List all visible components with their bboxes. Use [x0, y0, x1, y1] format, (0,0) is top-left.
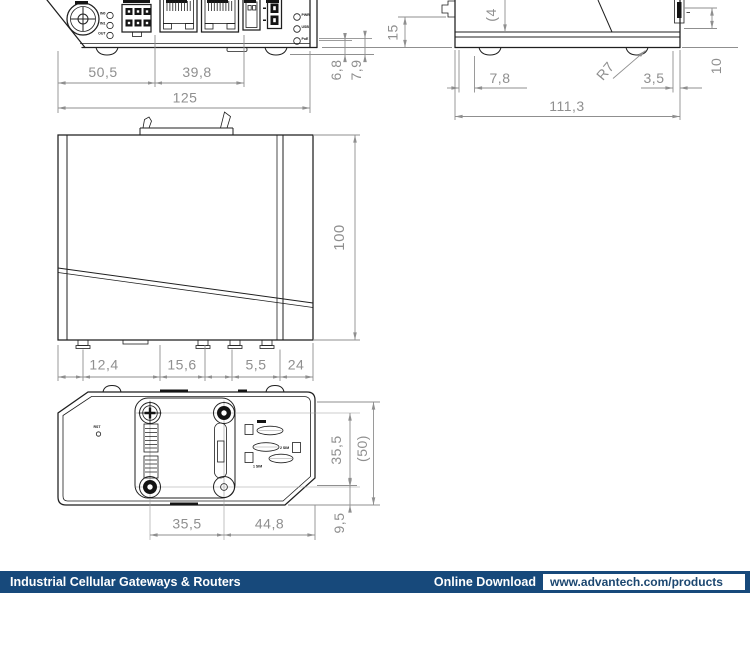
- cutoff-port-label: [166, 0, 187, 3]
- sim2-label: 2 SIM: [280, 446, 289, 450]
- sim-slots: 2 SIM 1 SIM: [245, 420, 301, 469]
- rubber-foot: [479, 48, 501, 56]
- front-dimensions: 50,5 39,8 125 6,8 7,9 15: [58, 17, 452, 113]
- dim-bottom-w2: 44,8: [255, 516, 284, 532]
- cutoff-port-label: [75, 1, 88, 5]
- dim-side-radius: R7: [593, 58, 617, 83]
- screw-top-left: [139, 402, 162, 425]
- power-connector: [263, 0, 282, 29]
- rubber-foot: [103, 386, 121, 393]
- datasheet-page: IN0 IN1 OUT: [0, 0, 750, 650]
- footer-title: Industrial Cellular Gateways & Routers: [10, 575, 434, 589]
- status-leds: PWR USB PoE: [294, 13, 310, 44]
- front-view: IN0 IN1 OUT: [47, 0, 452, 113]
- io-label-out: OUT: [98, 32, 106, 36]
- io-label-in1: IN1: [100, 22, 106, 26]
- side-view: (4 7,8 3,5 111,3 R7 10: [442, 0, 738, 120]
- dim-bottom-v3: 9,5: [331, 513, 347, 534]
- antenna-connector: [67, 3, 99, 35]
- din-clip-tab: [221, 112, 231, 128]
- dim-top-h: 100: [331, 224, 348, 251]
- ethernet-port-1: [202, 0, 239, 32]
- led-label-pwr: PWR: [302, 13, 311, 17]
- online-download-label: Online Download: [434, 575, 536, 589]
- dim-front-w2: 39,8: [182, 64, 211, 80]
- top-dimensions: 100 12,4 15,6 5,5 24: [58, 135, 360, 381]
- din-clip-profile: [442, 1, 455, 17]
- dim-bottom-v2: (50): [354, 435, 370, 462]
- dim-side-v: 10: [708, 58, 724, 75]
- din-clip-tab: [143, 117, 152, 128]
- dim-side-left: 7,8: [490, 70, 511, 86]
- mounting-slot: [215, 423, 227, 478]
- rubber-foot: [266, 386, 284, 393]
- rubber-foot: [96, 48, 118, 56]
- footer-bar: Industrial Cellular Gateways & Routers O…: [0, 571, 750, 593]
- side-dimensions: (4 7,8 3,5 111,3 R7 10: [447, 0, 738, 120]
- reset-hole: [96, 432, 100, 436]
- top-view: 100 12,4 15,6 5,5 24: [58, 112, 360, 381]
- sim1-label: 1 SIM: [253, 465, 262, 469]
- dim-bottom-v1: 35,5: [328, 435, 344, 464]
- technical-drawing: IN0 IN1 OUT: [0, 0, 750, 650]
- dim-side-cut: (4: [483, 8, 499, 21]
- dim-top-b2: 15,6: [167, 357, 196, 373]
- bottom-view: RST 2 SIM 1 SIM 35,5 44,8 35,5 (50): [58, 386, 380, 541]
- din-rail-bar: [140, 128, 233, 135]
- dim-bottom-w1: 35,5: [172, 516, 201, 532]
- dim-top-b1: 12,4: [89, 357, 118, 373]
- io-indicators: IN0 IN1 OUT: [98, 12, 113, 39]
- dim-side-right: 3,5: [644, 70, 665, 86]
- dim-side-total: 111,3: [549, 98, 584, 114]
- dim-front-v1: 6,8: [328, 60, 344, 81]
- led-label-poe: PoE: [302, 37, 309, 41]
- led-label-usb: USB: [302, 25, 310, 29]
- io-label-in0: IN0: [100, 12, 106, 16]
- vent-grilles: [144, 424, 158, 478]
- website-url: www.advantech.com/products: [543, 574, 745, 590]
- ethernet-port-0: [160, 0, 197, 32]
- dim-front-total: 125: [173, 90, 198, 106]
- reset-label: RST: [94, 425, 102, 429]
- dim-top-b4: 24: [288, 357, 305, 373]
- dim-top-b3: 5,5: [246, 357, 267, 373]
- dim-clip-height: 15: [385, 24, 401, 41]
- bottom-tabs: [76, 340, 274, 349]
- terminal-block-6pin: [122, 5, 151, 37]
- dim-front-v2: 7,9: [348, 60, 364, 81]
- usb-port: [243, 0, 260, 30]
- cutoff-port-label: [123, 0, 150, 3]
- rubber-foot: [265, 48, 287, 56]
- dim-front-w1: 50,5: [88, 64, 117, 80]
